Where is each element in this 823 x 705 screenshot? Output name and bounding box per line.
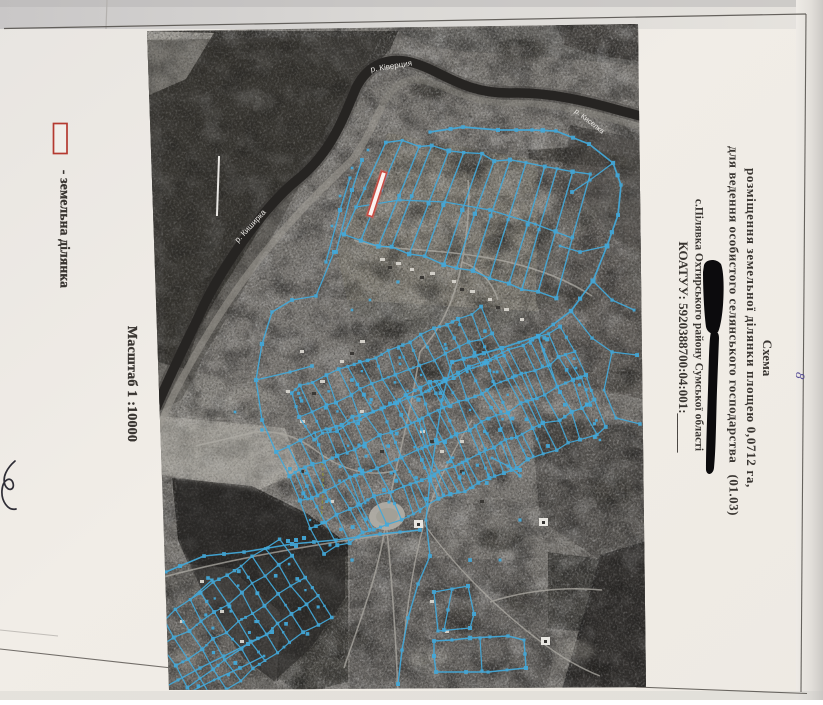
svg-text:розміщення земельної ділянки п: розміщення земельної ділянки площею 0,07… <box>744 168 759 488</box>
svg-text:КОАТУУ: 5920388700:04:001:____: КОАТУУ: 5920388700:04:001:______ <box>676 241 691 453</box>
svg-text:- земельна ділянка: - земельна ділянка <box>58 170 73 288</box>
svg-text:Масштаб 1 :10000: Масштаб 1 :10000 <box>124 326 139 442</box>
svg-text:Схема: Схема <box>760 340 775 377</box>
svg-text:с.Пілявка Охтирського району С: с.Пілявка Охтирського району Сумської об… <box>693 199 705 451</box>
svg-text:для ведення особистого селянсь: для ведення особистого селянського госпо… <box>727 146 742 516</box>
